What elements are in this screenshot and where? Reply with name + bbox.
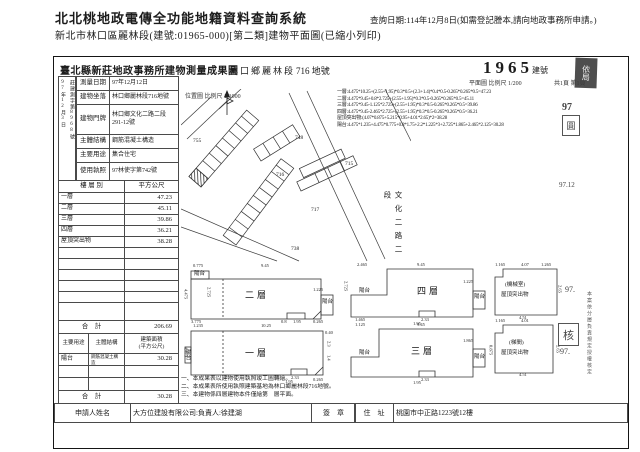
- form-title: 臺北縣新莊地政事務所建物測量成果圖: [60, 62, 239, 77]
- dimension-label: 0.775: [193, 264, 203, 269]
- dimension-label: 1.165: [495, 319, 505, 324]
- annex-col-structure: 主體結構: [88, 333, 125, 354]
- dimension-label: 738: [291, 247, 299, 253]
- query-date: 查詢日期:114年12月8日(如需登記謄本,請向地政事務所申請。): [370, 14, 597, 26]
- dimension-label: 屋頂突出物: [501, 351, 529, 357]
- doc-subtitle: 新北市林口區麗林段(建號:01965-000)[第二類]建物平面圖(已縮小列印): [55, 27, 381, 42]
- annex-total-label: 合 計: [58, 390, 125, 404]
- dimension-label: 4.51: [519, 373, 527, 378]
- site-plan: 文化二路二段 755748715716717738: [181, 89, 411, 265]
- dimension-label: 748: [295, 136, 303, 142]
- info-value: 97年12月12日: [109, 76, 179, 91]
- dimension-label: (梯間): [509, 341, 524, 347]
- dimension-label: 1.95: [293, 320, 301, 325]
- dimension-label: 0.265: [313, 320, 323, 325]
- office-corner-stamp: 依局: [574, 58, 597, 89]
- info-value: 林口鄉文化二路二段291-12號: [109, 104, 179, 135]
- dimension-label: 1.225: [463, 280, 473, 285]
- seal-label: 簽 章: [311, 403, 356, 423]
- applicant-label: 申請人姓名: [54, 403, 131, 423]
- info-value: 97林使字第742號: [109, 162, 179, 181]
- dimension-label: 10.25: [261, 324, 271, 329]
- plan-name-label: 三層: [411, 347, 435, 356]
- dimension-label: 1.235: [193, 324, 203, 329]
- dimension-label: 0.875: [488, 345, 493, 355]
- parcel-number: 716 地號: [296, 64, 330, 77]
- dimension-label: 4.475: [183, 289, 188, 299]
- building-strip-1: [189, 110, 259, 187]
- dimension-label: 2.65: [555, 345, 560, 353]
- dimension-label: 陽台: [474, 295, 485, 301]
- plan-1f-notch: [291, 367, 323, 375]
- dimension-label: 1.95: [413, 381, 421, 386]
- hatched-subject-unit: [189, 168, 208, 187]
- empty-row: [124, 377, 179, 391]
- building-block-748: [254, 125, 300, 161]
- info-label: 測量日期: [76, 76, 110, 91]
- dimension-label: 1.95: [285, 380, 293, 385]
- stamp-97: 97: [562, 102, 572, 113]
- receipt-cell: 97年12月3日 莊建測字第8968號: [58, 76, 76, 181]
- info-value: 鋼筋混凝土構造: [109, 134, 179, 149]
- empty-row: [58, 302, 125, 321]
- info-value: 林口鄉麗林段716地號: [109, 90, 179, 105]
- dimension-label: 屋頂突出物: [501, 293, 529, 299]
- dimension-label: 715: [345, 162, 353, 168]
- building-number-label: 建號: [532, 65, 548, 76]
- dimension-label: 2.465: [357, 263, 367, 268]
- plan-name-label: 一層: [245, 349, 269, 358]
- receipt-date: 97年12月3日: [58, 80, 67, 180]
- floor-plans: 0.7759.454.475陽台2.725二層1.225陽台3.7750.81.…: [183, 263, 565, 387]
- dimension-label: 0.40: [325, 331, 333, 336]
- dimension-label: 716: [276, 173, 284, 179]
- dimension-label: 2.725: [206, 287, 211, 297]
- survey-form-box: 臺北縣新莊地政事務所建物測量成果圖 林口鄉麗林段 716 地號 1965 建號 …: [53, 56, 629, 449]
- dimension-label: 2.725: [343, 281, 348, 291]
- empty-row: [124, 302, 179, 321]
- dimension-label: 陽台: [359, 289, 370, 295]
- floor-plan-scale: 平面圖 比例尺 1/200: [469, 78, 522, 87]
- check-seal-stamp: 核: [558, 323, 579, 346]
- plan-name-label: 二層: [245, 291, 269, 300]
- dimension-label: 1.165: [495, 263, 505, 268]
- applicant-address: 桃園市中正路1223號12樓: [393, 403, 628, 423]
- dimension-label: 9.45: [417, 263, 425, 268]
- dimension-label: 陽台: [184, 349, 190, 360]
- site-plan-drawing: [181, 89, 411, 265]
- dimension-label: 陽台: [194, 272, 205, 278]
- dimension-label: 4.01: [521, 319, 529, 324]
- dimension-label: 2.65: [557, 285, 562, 293]
- dimension-label: 0.8: [281, 320, 287, 325]
- plan-roof-stair-outline: [495, 325, 553, 373]
- annex-col-use: 主要用途: [58, 333, 89, 354]
- dimension-label: 1.125: [355, 323, 365, 328]
- dimension-label: 2.33: [421, 378, 429, 383]
- dimension-label: 陽台: [322, 300, 333, 306]
- dimension-label: 9.45: [261, 264, 269, 269]
- annex-total-value: 30.28: [124, 390, 179, 404]
- note-line: 三、本建物係四層建物本件僅繪第 層平面。: [181, 391, 371, 399]
- dimension-label: 陽台: [474, 355, 485, 361]
- floor-total-value: 206.69: [124, 320, 179, 334]
- address-label: 住 址: [354, 403, 394, 423]
- stamp-97-mid: 97.: [565, 285, 575, 294]
- dimension-label: 陽台: [359, 351, 370, 357]
- info-label: 主要用途: [76, 148, 110, 163]
- stamp-date-9712: 97.12: [559, 181, 575, 189]
- floor-total-label: 合 計: [58, 320, 125, 334]
- building-block-715: [292, 146, 357, 191]
- round-seal-stamp: 圓: [562, 115, 580, 136]
- applicant-name: 大方位建設有限公司:負責人:徐建湖: [130, 403, 312, 423]
- road-lines: [181, 89, 411, 261]
- receipt-number: 莊建測字第8968號: [67, 80, 76, 180]
- dimension-label: 1.865: [463, 339, 473, 344]
- page-title: 北北桃地政電傳全功能地籍資料查詢系統: [55, 8, 307, 27]
- building-number: 1965: [483, 58, 533, 78]
- dimension-label: 755: [193, 139, 201, 145]
- plan-2f-notch: [287, 311, 321, 319]
- section-name: 林口鄉麗林段: [229, 64, 295, 77]
- dimension-label: 0.265: [313, 378, 323, 383]
- plan-name-label: 四層: [417, 287, 441, 296]
- dimension-label: (機械室): [505, 283, 525, 289]
- empty-row: [88, 377, 125, 391]
- info-value: 集合住宅: [109, 148, 179, 163]
- dimension-label: 4.07: [521, 263, 529, 268]
- annex-col-area: 建築面積(平方公尺): [124, 333, 179, 354]
- info-label: 建物門牌: [76, 104, 110, 135]
- info-label: 主體結構: [76, 134, 110, 149]
- info-label: 使用執照: [76, 162, 110, 181]
- dimension-label: 9.45: [417, 323, 425, 328]
- stamp-97-low: 97.: [560, 347, 570, 356]
- info-label: 建物坐落: [76, 90, 110, 105]
- dimension-label: 1.4: [326, 355, 331, 361]
- dimension-label: 2.3: [326, 341, 331, 347]
- road-name-label: 文化二路二段: [382, 191, 404, 265]
- dimension-label: 1.225: [313, 288, 323, 293]
- dimension-label: 717: [311, 208, 319, 214]
- approval-strip-text: 本案依分層負責規定授權核定: [585, 291, 592, 376]
- dimension-label: 1.265: [541, 263, 551, 268]
- empty-row: [58, 377, 89, 391]
- document-page: 北北桃地政電傳全功能地籍資料查詢系統 查詢日期:114年12月8日(如需登記謄本…: [0, 0, 640, 452]
